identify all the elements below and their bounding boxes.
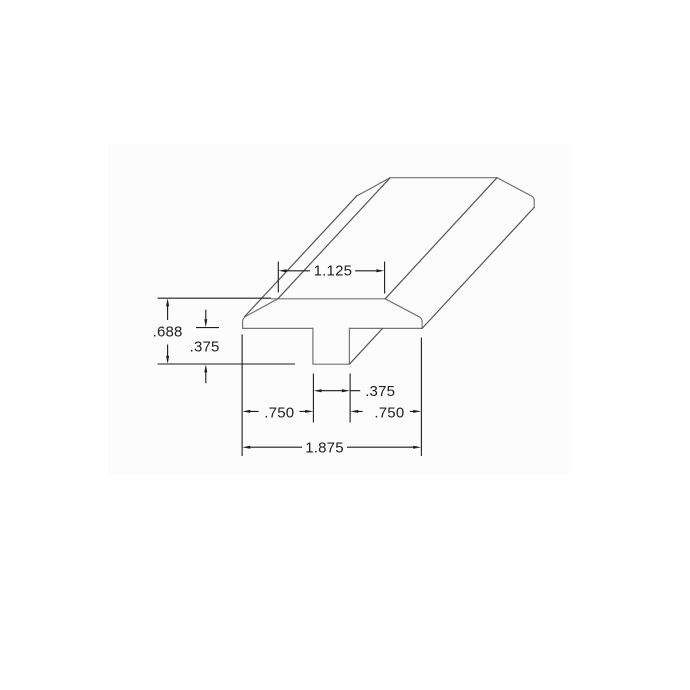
svg-text:.750: .750 xyxy=(374,405,404,422)
svg-text:.375: .375 xyxy=(190,339,220,356)
svg-text:.375: .375 xyxy=(365,383,395,400)
svg-text:.688: .688 xyxy=(153,324,183,341)
svg-text:.750: .750 xyxy=(264,405,294,422)
svg-text:1.125: 1.125 xyxy=(314,263,353,280)
svg-text:1.875: 1.875 xyxy=(305,440,344,457)
